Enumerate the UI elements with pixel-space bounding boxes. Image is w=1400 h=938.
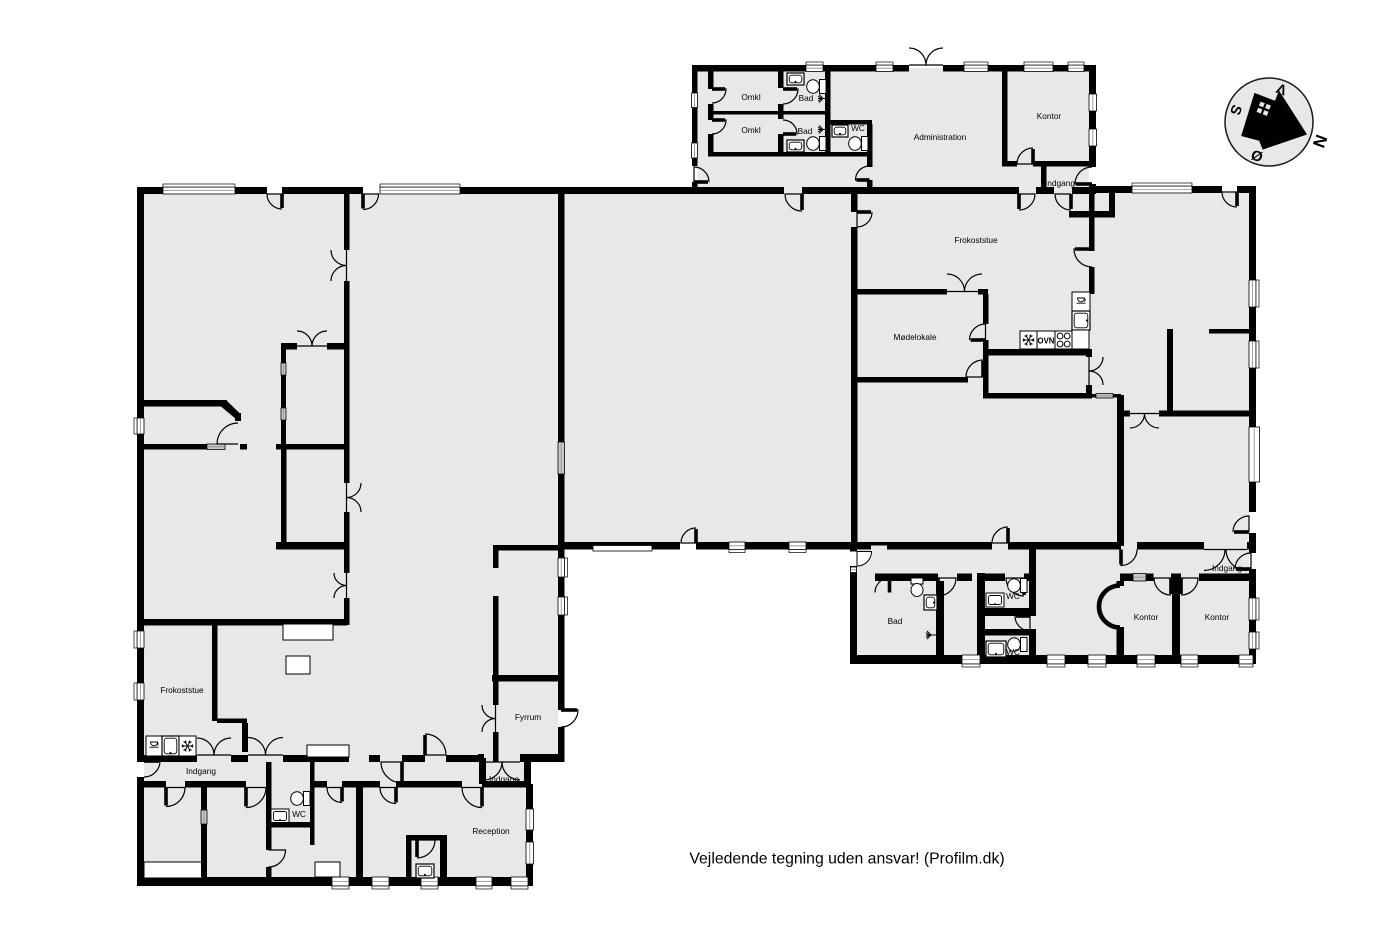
svg-text:Bad: Bad <box>798 126 813 136</box>
svg-text:Bad: Bad <box>888 616 903 626</box>
svg-text:Kontor: Kontor <box>1205 612 1230 622</box>
svg-text:Kontor: Kontor <box>1037 111 1062 121</box>
svg-text:Omkl: Omkl <box>741 92 761 102</box>
svg-text:Fyrrum: Fyrrum <box>515 712 541 722</box>
svg-text:Vejledende tegning uden ansvar: Vejledende tegning uden ansvar! (Profilm… <box>689 851 1004 868</box>
svg-text:Reception: Reception <box>472 826 510 836</box>
svg-text:WC: WC <box>1006 591 1020 601</box>
svg-text:OVN: OVN <box>1038 337 1055 346</box>
svg-text:Frokoststue: Frokoststue <box>160 685 204 695</box>
svg-text:Indgang: Indgang <box>1212 563 1242 573</box>
svg-text:Bad: Bad <box>799 93 814 103</box>
svg-text:Indgang: Indgang <box>186 766 216 776</box>
svg-text:Kontor: Kontor <box>1134 612 1159 622</box>
svg-text:Frokoststue: Frokoststue <box>954 235 998 245</box>
svg-text:WC: WC <box>851 123 865 133</box>
svg-text:Indgang: Indgang <box>1045 178 1075 188</box>
svg-text:Omkl: Omkl <box>741 125 761 135</box>
svg-text:WC: WC <box>292 809 306 819</box>
svg-text:Mødelokale: Mødelokale <box>894 332 937 342</box>
svg-text:WC: WC <box>1006 647 1020 657</box>
svg-text:Indgang: Indgang <box>489 774 519 784</box>
svg-text:Administration: Administration <box>914 132 967 142</box>
